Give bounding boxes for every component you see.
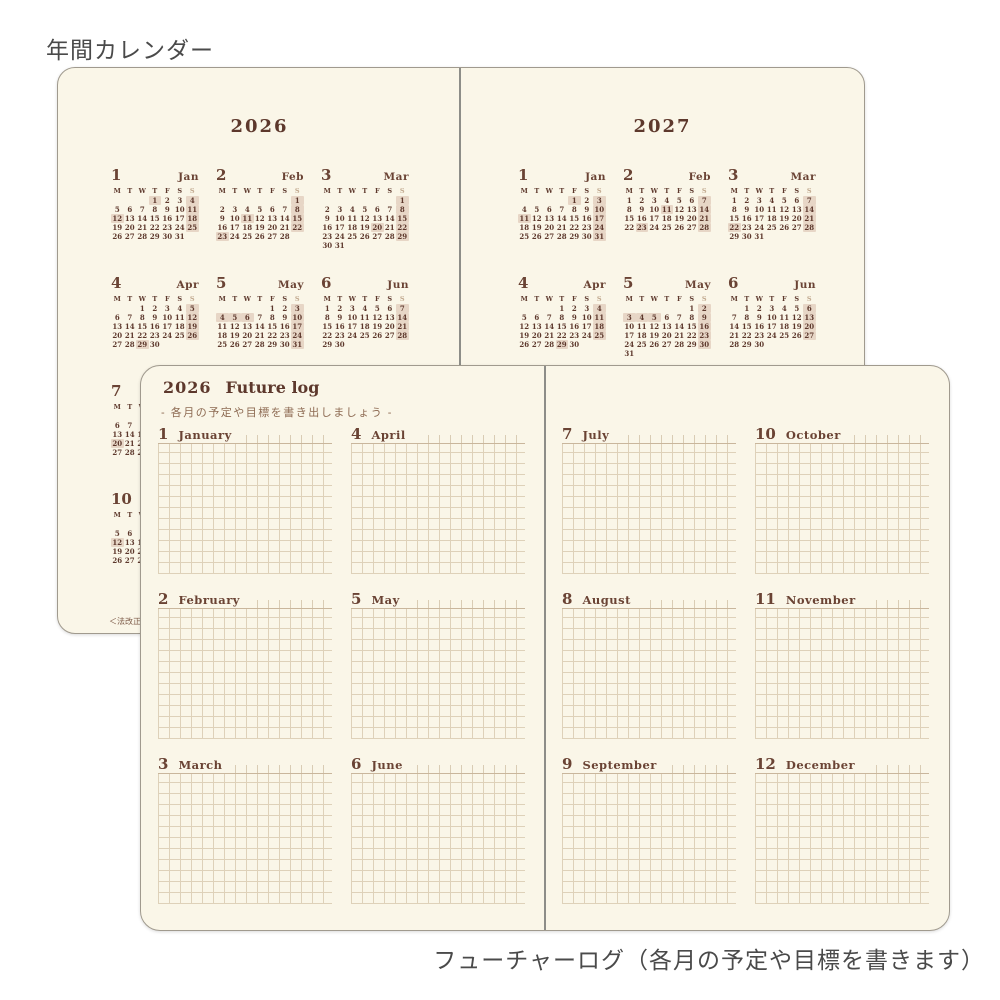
date-cell: 28 <box>136 232 149 241</box>
date-cell: 25 <box>778 331 791 340</box>
date-cell: 7 <box>556 205 569 214</box>
writing-grid <box>755 773 929 904</box>
date-cell: 15 <box>686 322 699 331</box>
date-cell: 24 <box>229 232 242 241</box>
date-cell: 13 <box>124 214 137 223</box>
date-cell: 20 <box>124 223 137 232</box>
date-cell: 11 <box>241 214 254 223</box>
date-cell: 19 <box>648 331 661 340</box>
date-cell <box>673 349 686 358</box>
date-cell: 5 <box>186 304 199 313</box>
date-cell: 26 <box>673 223 686 232</box>
date-cell <box>136 196 149 205</box>
weekday-label: F <box>673 187 686 196</box>
date-cell: 25 <box>186 223 199 232</box>
date-cell: 1 <box>686 304 699 313</box>
section-month-number: 9 <box>562 755 572 773</box>
weekday-label: F <box>266 295 279 304</box>
date-cell: 28 <box>728 340 741 349</box>
writing-grid <box>562 443 736 574</box>
date-cell: 25 <box>346 232 359 241</box>
date-cell: 13 <box>531 322 544 331</box>
date-cell <box>648 304 661 313</box>
weekday-label: F <box>568 187 581 196</box>
date-cell: 18 <box>766 214 779 223</box>
date-cell: 26 <box>229 340 242 349</box>
date-cell: 26 <box>531 232 544 241</box>
month-name: Apr <box>583 279 606 291</box>
weekday-label: W <box>543 187 556 196</box>
month-name: Jun <box>794 279 816 291</box>
date-cell: 7 <box>384 205 397 214</box>
future-log-month-section: 5May <box>351 586 525 739</box>
weekday-label: W <box>753 187 766 196</box>
future-log-month-section: 2February <box>158 586 332 739</box>
date-cell: 19 <box>673 214 686 223</box>
date-cell: 16 <box>216 223 229 232</box>
date-cell: 20 <box>124 547 137 556</box>
date-cell <box>254 196 267 205</box>
date-cell: 23 <box>568 331 581 340</box>
month-number: 3 <box>321 166 331 184</box>
date-cell: 12 <box>673 205 686 214</box>
date-cell: 23 <box>741 223 754 232</box>
date-cell: 31 <box>174 232 187 241</box>
weekday-label: T <box>254 187 267 196</box>
weekday-header-row: MTWTFSS <box>321 187 409 196</box>
date-cell <box>124 412 137 421</box>
date-cell: 30 <box>753 340 766 349</box>
section-label: 9September <box>562 754 669 773</box>
date-cell: 4 <box>593 304 606 313</box>
date-cell: 20 <box>111 439 124 448</box>
weekday-header-row: MTWTFSS <box>623 295 711 304</box>
date-cell <box>648 349 661 358</box>
date-cell <box>359 340 372 349</box>
date-cell: 21 <box>254 331 267 340</box>
date-cell <box>698 349 711 358</box>
weekday-label: S <box>186 187 199 196</box>
date-cell: 15 <box>291 214 304 223</box>
date-cell: 3 <box>291 304 304 313</box>
date-cell: 31 <box>753 232 766 241</box>
date-cell: 10 <box>766 313 779 322</box>
weekday-label: M <box>321 295 334 304</box>
week-row: 1234567 <box>623 196 711 205</box>
week-row: 123 <box>216 304 304 313</box>
weekday-label: S <box>593 187 606 196</box>
week-row: 2345678 <box>321 205 409 214</box>
date-cell: 13 <box>124 538 137 547</box>
weekday-label: S <box>791 295 804 304</box>
date-cell: 19 <box>531 223 544 232</box>
date-cell: 1 <box>266 304 279 313</box>
date-cell <box>241 196 254 205</box>
date-cell: 4 <box>636 313 649 322</box>
date-cell <box>174 340 187 349</box>
weekday-label: F <box>371 295 384 304</box>
date-cell: 26 <box>359 232 372 241</box>
future-log-month-section: 9September <box>562 751 736 904</box>
date-cell: 30 <box>581 232 594 241</box>
date-cell: 21 <box>698 214 711 223</box>
date-cell: 17 <box>648 214 661 223</box>
date-cell <box>766 340 779 349</box>
weekday-label: S <box>384 187 397 196</box>
date-cell <box>556 196 569 205</box>
date-cell: 9 <box>753 313 766 322</box>
section-month-name: August <box>582 593 630 607</box>
weekday-label: M <box>111 187 124 196</box>
date-cell: 22 <box>396 223 409 232</box>
weekday-header-row: MTWTFSS <box>216 295 304 304</box>
date-cell: 7 <box>136 205 149 214</box>
weekday-label: S <box>581 295 594 304</box>
date-cell: 3 <box>753 196 766 205</box>
date-cell: 21 <box>124 439 137 448</box>
week-row: 567891011 <box>111 205 199 214</box>
date-cell: 9 <box>161 205 174 214</box>
section-label: 4April <box>351 424 418 443</box>
month-number: 1 <box>111 166 121 184</box>
date-cell: 8 <box>568 205 581 214</box>
mini-month-calendar: 3MarMTWTFSS12345678910111213141516171819… <box>728 166 816 241</box>
date-cell: 1 <box>396 196 409 205</box>
date-cell: 14 <box>124 322 137 331</box>
section-header: 2February <box>158 586 332 608</box>
weekday-label: F <box>778 187 791 196</box>
date-cell: 3 <box>346 304 359 313</box>
weekday-label: W <box>241 295 254 304</box>
week-row: 1234 <box>518 304 606 313</box>
weekday-label: S <box>186 295 199 304</box>
date-cell: 24 <box>766 331 779 340</box>
date-cell: 10 <box>161 313 174 322</box>
weekday-label: W <box>346 295 359 304</box>
date-cell: 4 <box>518 205 531 214</box>
date-cell <box>778 340 791 349</box>
weekday-label: T <box>556 295 569 304</box>
date-cell: 1 <box>623 196 636 205</box>
year-title-2027: 2027 <box>461 116 864 137</box>
weekday-label: T <box>149 187 162 196</box>
month-name: Feb <box>282 171 304 183</box>
date-cell: 31 <box>334 241 347 250</box>
date-cell: 17 <box>174 214 187 223</box>
date-cell <box>766 232 779 241</box>
section-month-name: September <box>582 758 656 772</box>
mini-month-calendar: 2FebMTWTFSS12345678910111213141516171819… <box>216 166 304 241</box>
date-cell: 27 <box>803 331 816 340</box>
date-cell: 14 <box>124 430 137 439</box>
date-cell: 24 <box>174 223 187 232</box>
date-cell: 8 <box>266 313 279 322</box>
week-row: 15161718192021 <box>321 322 409 331</box>
mini-month-calendar: 2FebMTWTFSS12345678910111213141516171819… <box>623 166 711 232</box>
date-cell: 13 <box>266 214 279 223</box>
date-cell: 16 <box>636 214 649 223</box>
date-cell: 23 <box>753 331 766 340</box>
date-cell: 10 <box>593 205 606 214</box>
weekday-label: S <box>174 187 187 196</box>
date-cell: 17 <box>291 322 304 331</box>
holiday-footnote: ＜法改正 <box>109 616 141 627</box>
date-cell: 28 <box>803 223 816 232</box>
date-cell: 4 <box>346 205 359 214</box>
date-cell: 10 <box>174 205 187 214</box>
date-cell: 6 <box>384 304 397 313</box>
date-cell: 21 <box>803 214 816 223</box>
date-cell: 13 <box>791 205 804 214</box>
date-cell <box>346 196 359 205</box>
date-cell: 6 <box>111 421 124 430</box>
month-number: 2 <box>216 166 226 184</box>
date-cell: 16 <box>321 223 334 232</box>
section-month-number: 7 <box>562 425 572 443</box>
month-name: Jan <box>178 171 199 183</box>
section-label: 10October <box>755 424 853 443</box>
date-cell: 7 <box>728 313 741 322</box>
week-row: 1234567 <box>728 196 816 205</box>
week-row: 9101112131415 <box>321 214 409 223</box>
date-cell <box>111 304 124 313</box>
date-cell: 27 <box>686 223 699 232</box>
date-cell: 7 <box>124 313 137 322</box>
future-log-spread: 2026Future log - 各月の予定や目標を書き出しましょう - 1Ja… <box>140 365 950 931</box>
date-cell: 11 <box>593 313 606 322</box>
date-cell: 18 <box>359 322 372 331</box>
date-cell: 29 <box>266 340 279 349</box>
date-cell: 3 <box>229 205 242 214</box>
weekday-label: T <box>766 187 779 196</box>
date-cell <box>111 520 124 529</box>
weekday-label: S <box>686 295 699 304</box>
date-cell: 25 <box>636 340 649 349</box>
date-cell <box>636 304 649 313</box>
month-number: 4 <box>111 274 121 292</box>
date-cell: 3 <box>623 313 636 322</box>
weekday-label: S <box>686 187 699 196</box>
date-cell: 18 <box>518 223 531 232</box>
weekday-label: W <box>648 187 661 196</box>
date-cell: 28 <box>124 448 137 457</box>
date-cell: 21 <box>543 331 556 340</box>
date-cell: 25 <box>216 340 229 349</box>
writing-grid <box>351 608 525 739</box>
date-cell <box>531 304 544 313</box>
date-cell: 6 <box>266 205 279 214</box>
section-month-name: May <box>371 593 399 607</box>
date-cell: 27 <box>111 340 124 349</box>
weekday-label: S <box>396 295 409 304</box>
week-row: 22232425262728 <box>321 331 409 340</box>
date-cell: 15 <box>321 322 334 331</box>
date-cell: 6 <box>531 313 544 322</box>
week-row: 25262728293031 <box>216 340 304 349</box>
weekday-header-row: MTWTFSS <box>216 187 304 196</box>
date-cell: 11 <box>636 322 649 331</box>
future-log-month-section: 10October <box>755 421 929 574</box>
week-row: 3031 <box>321 241 409 250</box>
weekday-label: S <box>593 295 606 304</box>
date-cell <box>254 304 267 313</box>
date-cell: 18 <box>346 223 359 232</box>
date-cell: 17 <box>623 331 636 340</box>
date-cell: 18 <box>593 322 606 331</box>
date-cell: 22 <box>623 223 636 232</box>
weekday-label: F <box>673 295 686 304</box>
date-cell: 16 <box>149 322 162 331</box>
writing-grid <box>351 443 525 574</box>
week-row: 19202122232425 <box>111 223 199 232</box>
date-cell: 22 <box>291 223 304 232</box>
date-cell: 24 <box>291 331 304 340</box>
date-cell: 24 <box>161 331 174 340</box>
date-cell: 17 <box>229 223 242 232</box>
date-cell: 27 <box>384 331 397 340</box>
date-cell: 26 <box>111 556 124 565</box>
date-cell: 25 <box>174 331 187 340</box>
section-label: 12December <box>755 754 867 773</box>
week-row: 891011121314 <box>321 313 409 322</box>
date-cell: 13 <box>661 322 674 331</box>
date-cell: 5 <box>518 313 531 322</box>
weekday-header-row: MTWTFSS <box>623 187 711 196</box>
section-month-name: October <box>786 428 841 442</box>
date-cell: 20 <box>531 331 544 340</box>
date-cell <box>161 340 174 349</box>
date-cell: 13 <box>543 214 556 223</box>
weekday-label: S <box>698 187 711 196</box>
date-cell: 27 <box>124 232 137 241</box>
date-cell: 22 <box>686 331 699 340</box>
date-cell: 24 <box>648 223 661 232</box>
date-cell: 24 <box>346 331 359 340</box>
date-cell: 8 <box>291 205 304 214</box>
date-cell: 17 <box>334 223 347 232</box>
weekday-label: S <box>279 187 292 196</box>
date-cell: 11 <box>661 205 674 214</box>
date-cell: 2 <box>216 205 229 214</box>
date-cell <box>371 340 384 349</box>
writing-grid <box>562 608 736 739</box>
date-cell: 26 <box>778 223 791 232</box>
weekday-label: S <box>803 295 816 304</box>
date-cell: 27 <box>124 556 137 565</box>
date-cell <box>229 196 242 205</box>
week-row: 2345678 <box>216 205 304 214</box>
future-log-month-section: 1January <box>158 421 332 574</box>
date-cell: 7 <box>803 196 816 205</box>
date-cell: 4 <box>186 196 199 205</box>
future-log-page-right: 7July10October8August11November9Septembe… <box>545 366 949 930</box>
month-header: 3Mar <box>321 166 409 186</box>
weekday-label: S <box>791 187 804 196</box>
section-month-name: February <box>178 593 240 607</box>
writing-grid <box>755 443 929 574</box>
section-month-number: 11 <box>755 590 776 608</box>
date-cell <box>334 196 347 205</box>
date-cell: 22 <box>728 223 741 232</box>
weekday-label: M <box>623 187 636 196</box>
mini-month-calendar: 5MayMTWTFSS12345678910111213141516171819… <box>623 274 711 358</box>
date-cell: 1 <box>136 304 149 313</box>
date-cell: 5 <box>791 304 804 313</box>
writing-grid <box>351 773 525 904</box>
date-cell: 21 <box>396 322 409 331</box>
date-cell: 2 <box>279 304 292 313</box>
week-row: 21222324252627 <box>728 331 816 340</box>
weekday-label: T <box>149 295 162 304</box>
weekday-header-row: MTWTFSS <box>518 187 606 196</box>
date-cell: 4 <box>778 304 791 313</box>
date-cell: 22 <box>556 331 569 340</box>
week-row: 15161718192021 <box>623 214 711 223</box>
date-cell: 10 <box>291 313 304 322</box>
section-month-number: 3 <box>158 755 168 773</box>
date-cell: 6 <box>686 196 699 205</box>
date-cell: 28 <box>396 331 409 340</box>
date-cell: 20 <box>543 223 556 232</box>
weekday-label: T <box>334 295 347 304</box>
weekday-label: T <box>741 295 754 304</box>
date-cell: 12 <box>518 322 531 331</box>
date-cell: 3 <box>766 304 779 313</box>
date-cell: 12 <box>648 322 661 331</box>
writing-grid <box>755 608 929 739</box>
date-cell: 22 <box>321 331 334 340</box>
date-cell: 6 <box>111 313 124 322</box>
section-label: 7July <box>562 424 621 443</box>
weekday-label: F <box>568 295 581 304</box>
date-cell: 26 <box>371 331 384 340</box>
date-cell: 30 <box>149 340 162 349</box>
date-cell: 21 <box>556 223 569 232</box>
weekday-label: F <box>161 187 174 196</box>
date-cell: 23 <box>334 331 347 340</box>
section-label: 8August <box>562 589 643 608</box>
week-row: 262728293031 <box>111 232 199 241</box>
section-header: 12December <box>755 751 929 773</box>
date-cell: 29 <box>568 232 581 241</box>
section-month-name: April <box>371 428 405 442</box>
section-header: 6June <box>351 751 525 773</box>
section-month-number: 6 <box>351 755 361 773</box>
date-cell: 26 <box>518 340 531 349</box>
date-cell <box>518 196 531 205</box>
week-row: 6789101112 <box>111 313 199 322</box>
writing-grid <box>158 443 332 574</box>
date-cell: 29 <box>556 340 569 349</box>
date-cell: 26 <box>254 232 267 241</box>
date-cell: 13 <box>803 313 816 322</box>
date-cell: 19 <box>111 547 124 556</box>
section-header: 7July <box>562 421 736 443</box>
date-cell: 3 <box>648 196 661 205</box>
date-cell: 4 <box>174 304 187 313</box>
weekday-label: W <box>136 187 149 196</box>
section-month-name: January <box>178 428 231 442</box>
date-cell <box>661 349 674 358</box>
weekday-label: M <box>111 511 124 520</box>
date-cell: 8 <box>741 313 754 322</box>
date-cell: 7 <box>254 313 267 322</box>
date-cell: 26 <box>791 331 804 340</box>
date-cell: 23 <box>216 232 229 241</box>
month-number: 6 <box>728 274 738 292</box>
mini-month-calendar: 4AprMTWTFSS12345678910111213141516171819… <box>518 274 606 349</box>
date-cell: 24 <box>581 331 594 340</box>
